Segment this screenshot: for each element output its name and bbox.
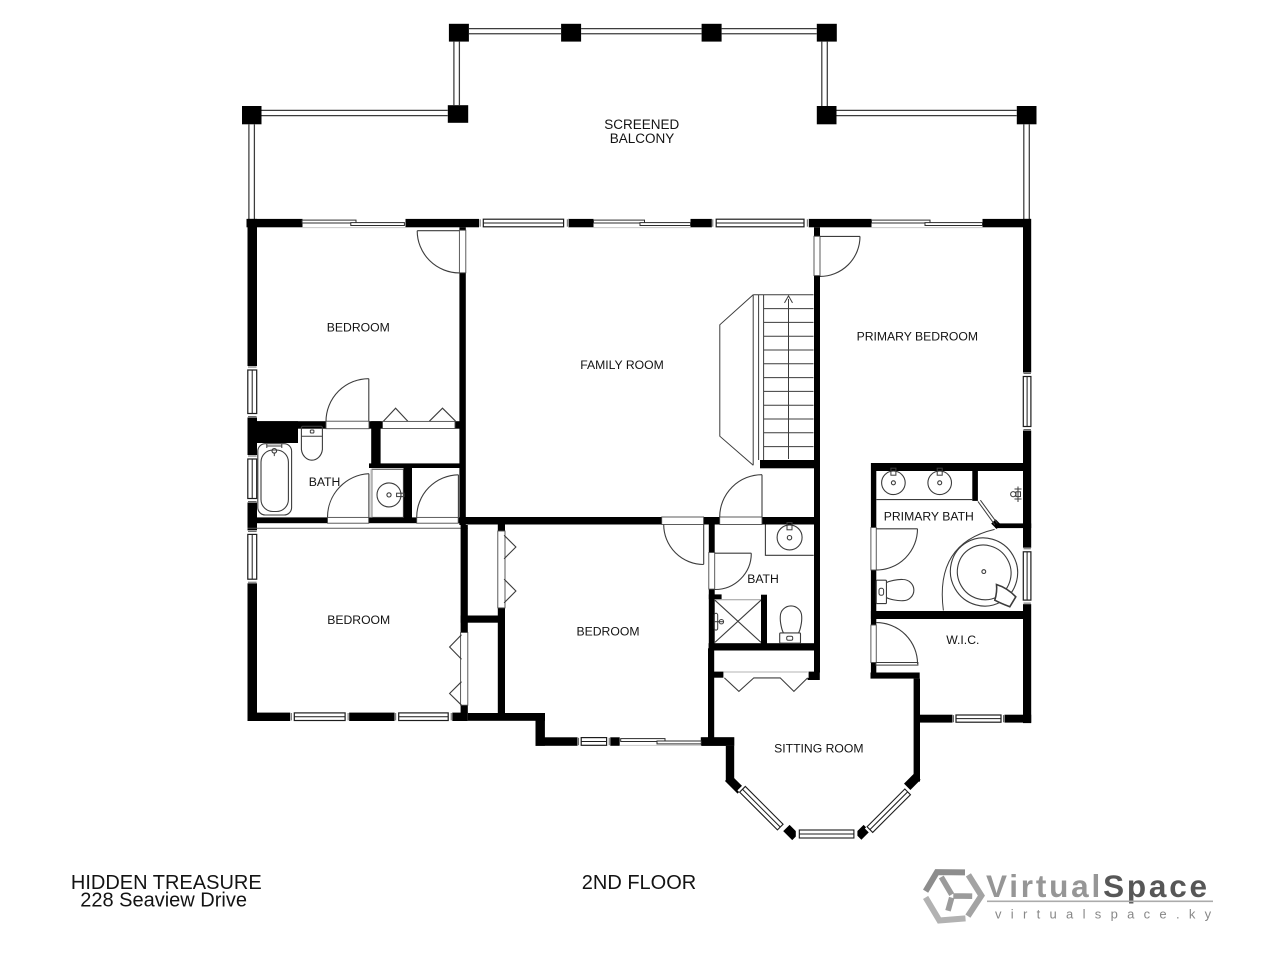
svg-text:BATH: BATH <box>747 572 779 586</box>
svg-text:FAMILY ROOM: FAMILY ROOM <box>580 358 664 372</box>
svg-text:virtualspace.ky: virtualspace.ky <box>995 907 1220 922</box>
svg-text:W.I.C.: W.I.C. <box>946 633 979 647</box>
svg-text:PRIMARY BATH: PRIMARY BATH <box>884 510 974 524</box>
svg-text:VirtualSpace: VirtualSpace <box>986 868 1210 904</box>
svg-text:BATH: BATH <box>309 475 341 489</box>
svg-text:SITTING ROOM: SITTING ROOM <box>774 742 863 756</box>
svg-text:BEDROOM: BEDROOM <box>327 613 390 627</box>
svg-text:228 Seaview Drive: 228 Seaview Drive <box>80 890 247 912</box>
svg-text:BEDROOM: BEDROOM <box>327 321 390 335</box>
svg-text:2ND FLOOR: 2ND FLOOR <box>582 872 696 894</box>
svg-text:BALCONY: BALCONY <box>610 131 675 146</box>
svg-text:PRIMARY BEDROOM: PRIMARY BEDROOM <box>857 329 978 343</box>
svg-text:BEDROOM: BEDROOM <box>577 624 640 638</box>
